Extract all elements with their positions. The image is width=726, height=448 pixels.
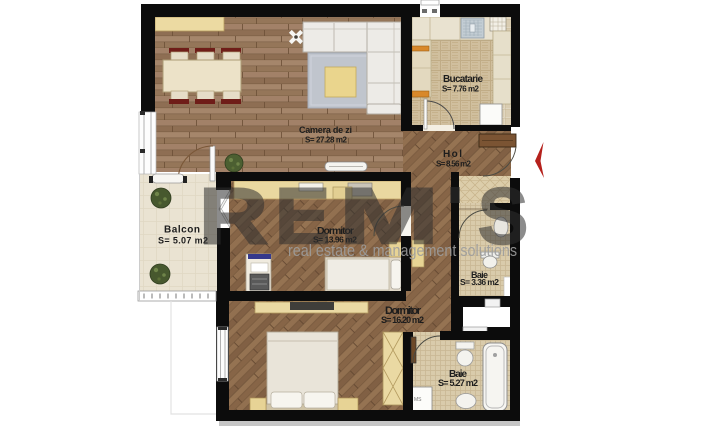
svg-text:S= 8.56 m2: S= 8.56 m2 <box>436 160 472 169</box>
svg-text:real estate & management solut: real estate & management solutions <box>288 241 517 260</box>
svg-text:Hol: Hol <box>443 149 462 160</box>
svg-text:S= 5.27 m2: S= 5.27 m2 <box>438 378 478 388</box>
svg-text:S= 3.36 m2: S= 3.36 m2 <box>460 277 499 287</box>
svg-text:Balcon: Balcon <box>164 225 200 236</box>
svg-text:Camera de zi: Camera de zi <box>299 125 352 135</box>
svg-text:S= 16.20 m2: S= 16.20 m2 <box>381 315 424 325</box>
svg-text:S= 27.28 m2: S= 27.28 m2 <box>305 135 348 144</box>
svg-text:R: R <box>199 171 268 260</box>
svg-text:MS: MS <box>414 397 422 403</box>
svg-text:S= 7.76 m2: S= 7.76 m2 <box>442 85 480 94</box>
svg-text:Bucatarie: Bucatarie <box>443 74 483 85</box>
